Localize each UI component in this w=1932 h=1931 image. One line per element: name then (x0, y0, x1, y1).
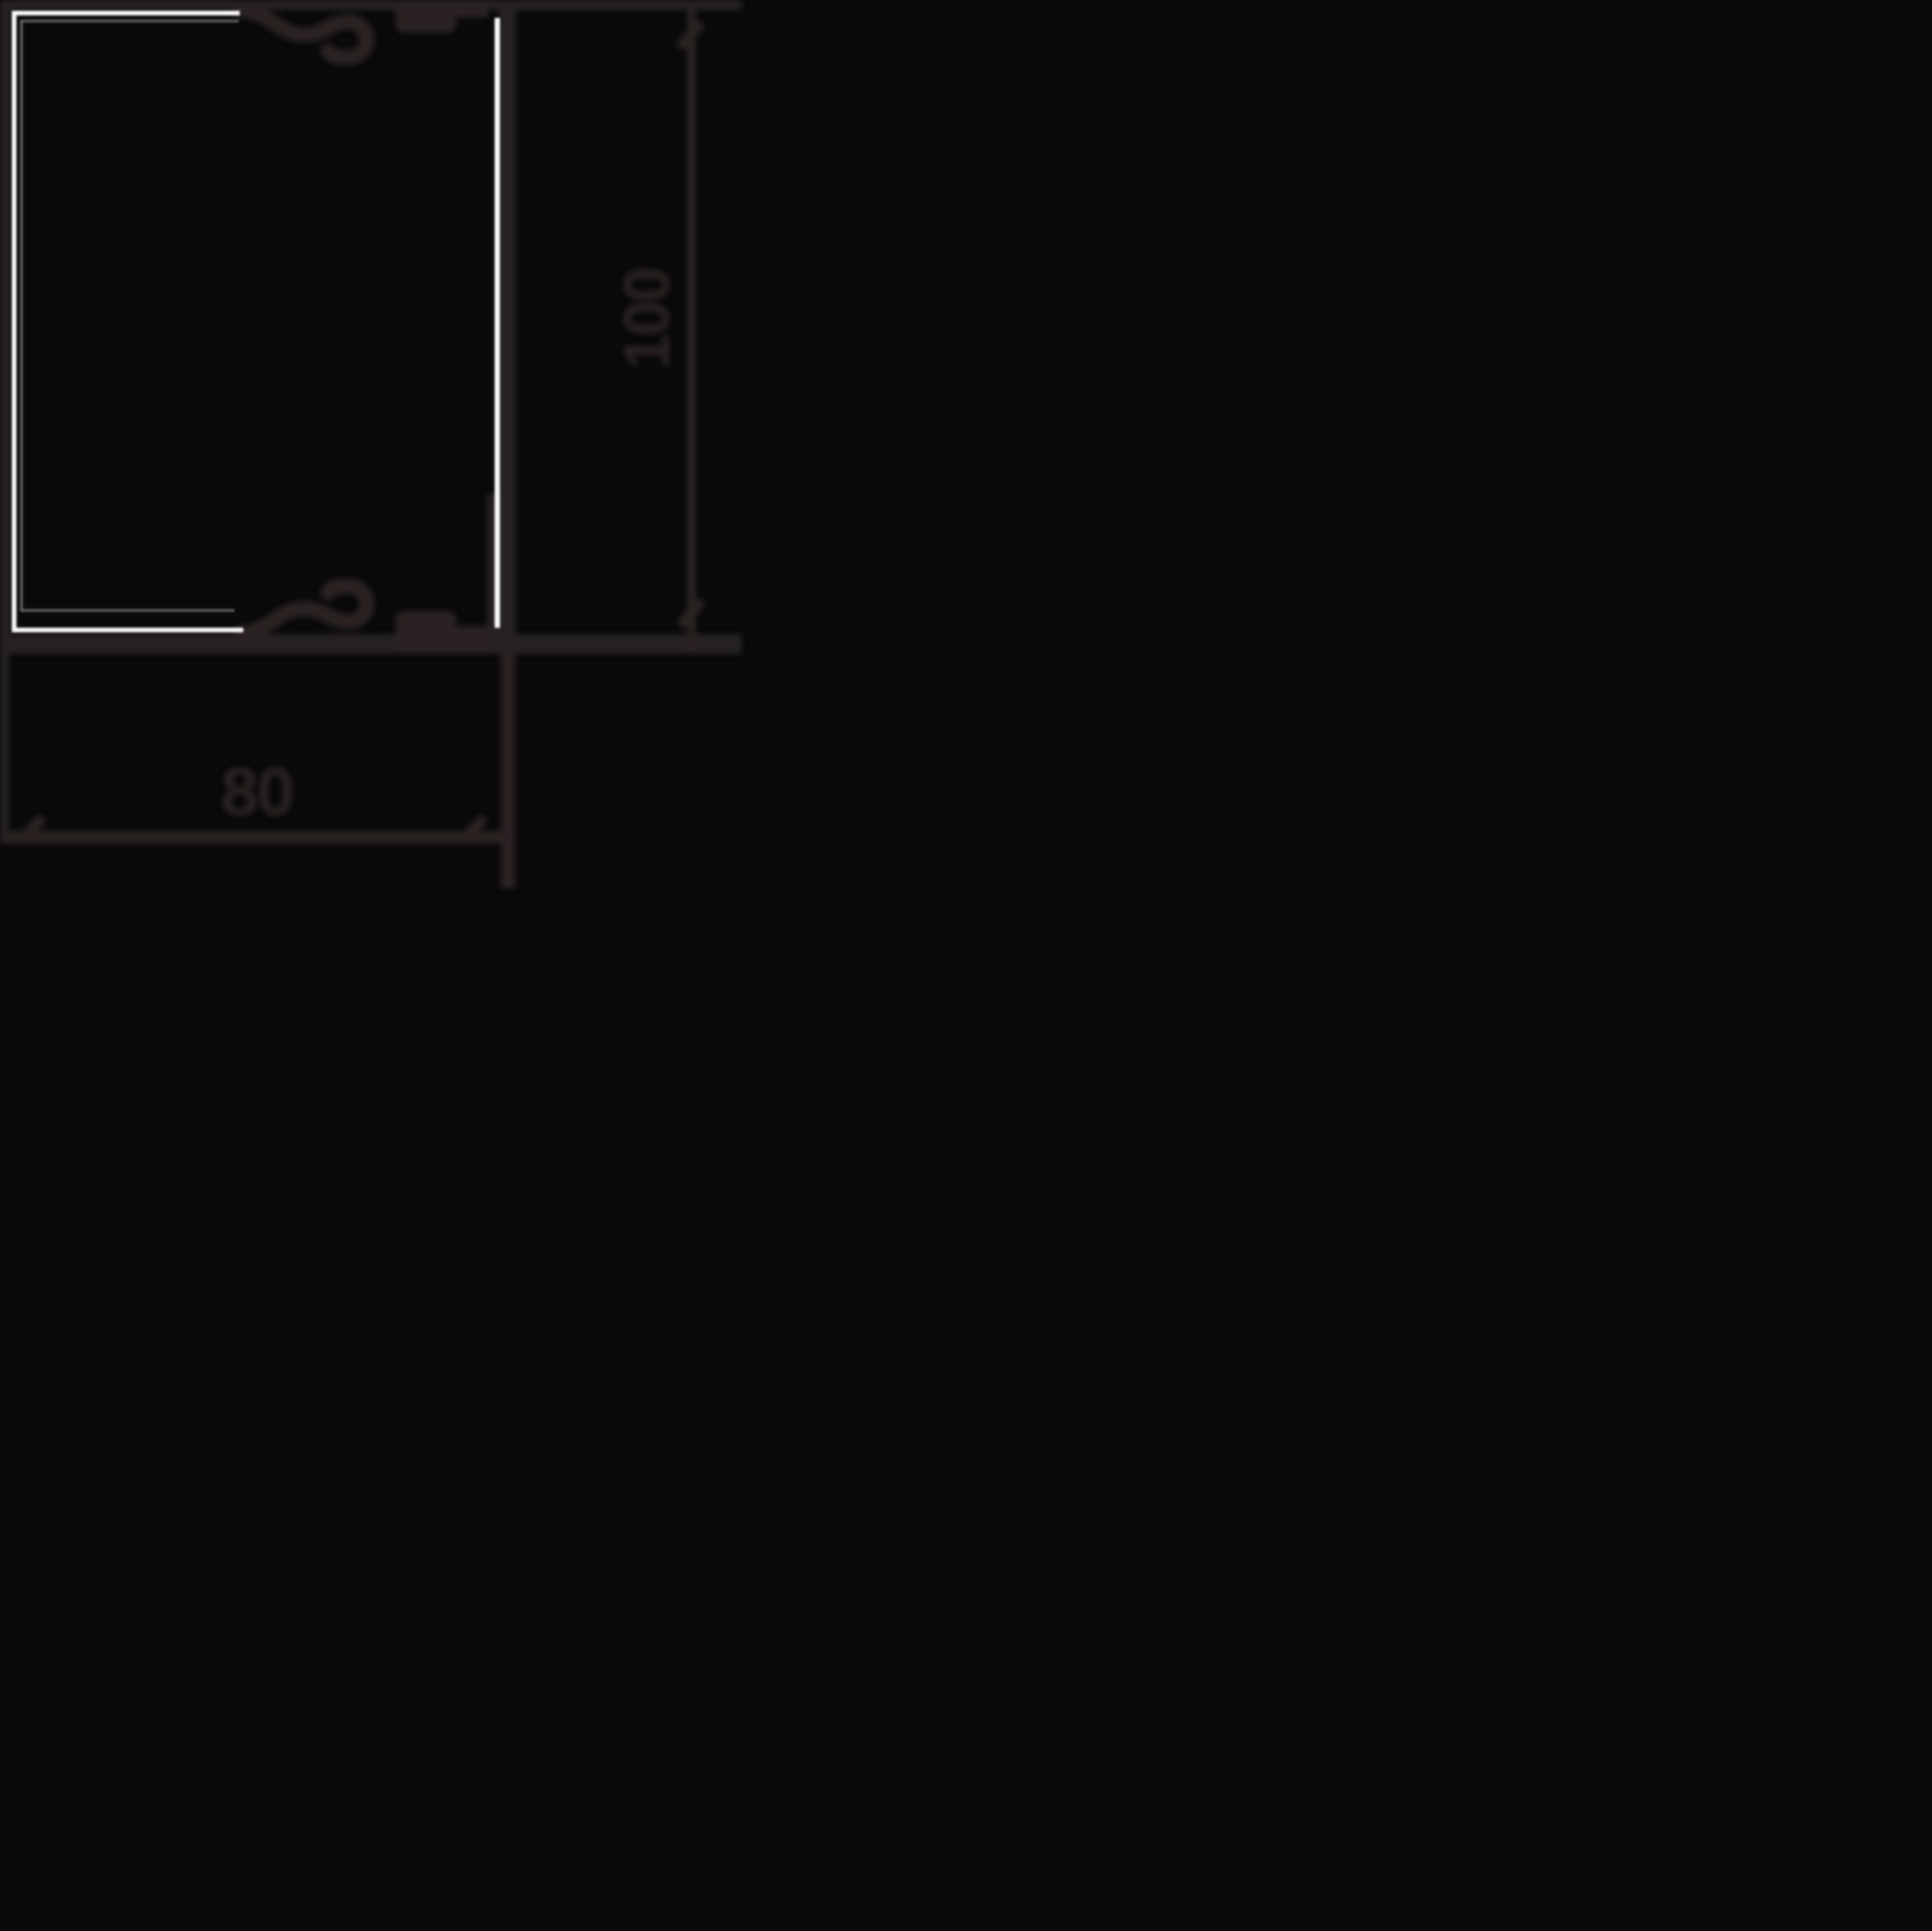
svg-text:100: 100 (612, 268, 683, 369)
svg-text:80: 80 (221, 755, 293, 831)
